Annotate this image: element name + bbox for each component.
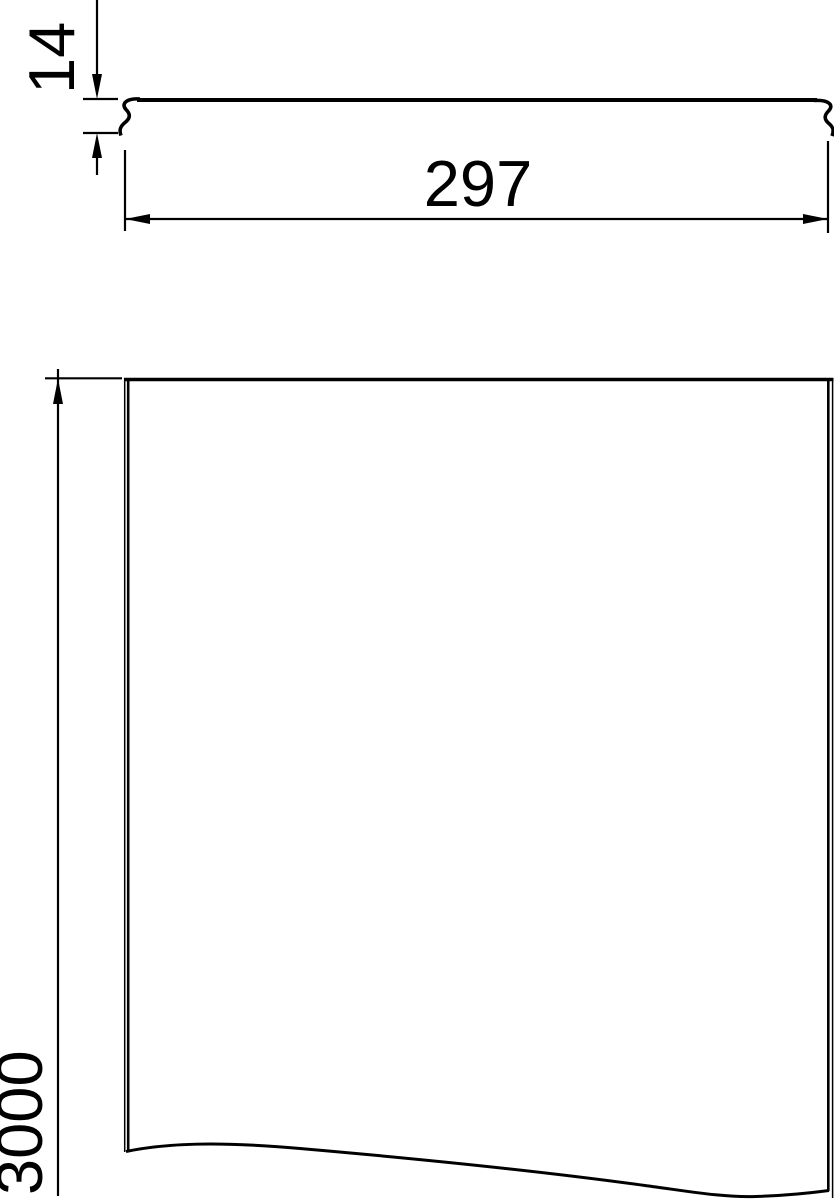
thickness-arrow-down-icon [92, 74, 102, 99]
width-arrow-right-icon [803, 214, 828, 224]
dimension-drawing-canvas: 14 297 3000 [0, 0, 834, 1200]
length-dimension [45, 369, 122, 1196]
plan-view [124, 378, 834, 1198]
plan-bottom-break-line [126, 1144, 829, 1197]
length-arrow-up-icon [53, 379, 63, 405]
width-arrow-left-icon [125, 214, 150, 224]
left-break-mark [120, 99, 140, 136]
side-profile-view [120, 99, 833, 136]
thickness-dimension-label: 14 [19, 22, 84, 94]
length-dimension-label: 3000 [0, 1050, 52, 1195]
thickness-dimension [83, 0, 118, 175]
right-break-mark [814, 100, 833, 136]
width-dimension-label: 297 [424, 151, 532, 216]
drawing-svg [0, 0, 834, 1200]
thickness-arrow-up-icon [92, 133, 102, 158]
